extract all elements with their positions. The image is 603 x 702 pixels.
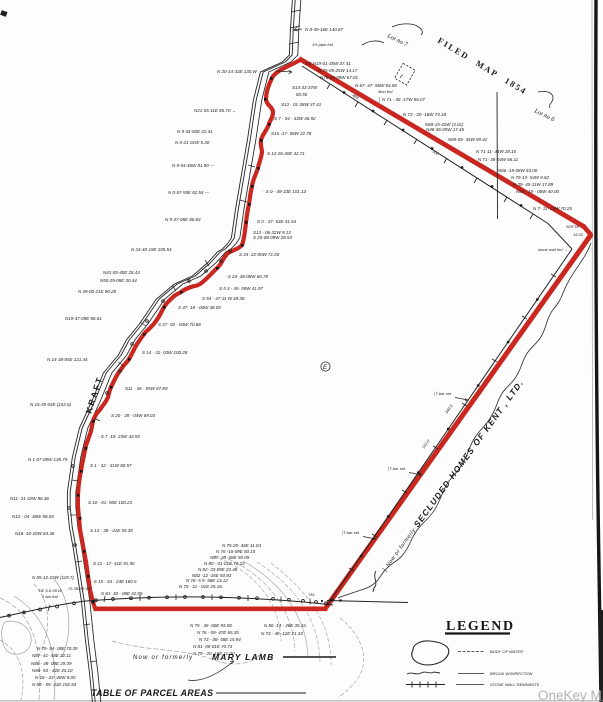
- svg-text:N 39- 45-11W 17.89: N 39- 45-11W 17.89: [513, 182, 554, 187]
- svg-text:N 76- 5 5- 58E 13.12: N 76- 5 5- 58E 13.12: [186, 578, 228, 583]
- svg-text:16.32: 16.32: [573, 232, 584, 237]
- svg-text:N41-05-40E 28.43: N41-05-40E 28.43: [103, 270, 140, 275]
- svg-text:Mon fnd: Mon fnd: [378, 89, 393, 94]
- svg-text:BODY OF WATER: BODY OF WATER: [490, 649, 523, 654]
- svg-text:76 3B-09 WP: 76 3B-09 WP: [68, 586, 92, 591]
- svg-text:N 75-05-25W 14.17: N 75-05-25W 14.17: [318, 68, 358, 73]
- svg-text:S 25-08-09W 28.53: S 25-08-09W 28.53: [253, 235, 293, 240]
- svg-text:- S 24- 38-08W 60.78: - S 24- 38-08W 60.78: [225, 274, 269, 279]
- svg-text:TIE 5-8-09 W: TIE 5-8-09 W: [38, 588, 63, 593]
- svg-text:LEGEND: LEGEND: [446, 619, 515, 634]
- svg-text:80.55: 80.55: [296, 92, 308, 97]
- svg-text:N 67- 47- 56W 64.58: N 67- 47- 56W 64.58: [355, 83, 397, 88]
- svg-text:N 05-12-23W (119.7): N 05-12-23W (119.7): [32, 575, 74, 580]
- svg-text:N66 -19-08W 43.00: N66 -19-08W 43.00: [498, 168, 538, 173]
- svg-text:N 9-34-50E 22.41: N 9-34-50E 22.41: [177, 129, 213, 134]
- svg-text:N 75-13- 54W 9.62: N 75-13- 54W 9.62: [511, 175, 550, 180]
- svg-text:1½ pipe fnd: 1½ pipe fnd: [312, 42, 334, 47]
- svg-text:S 0 - 37- 53E 41.54: S 0 - 37- 53E 41.54: [257, 219, 297, 224]
- svg-text:N 88 - 55- 41E 192.84: N 88 - 55- 41E 192.84: [32, 682, 77, 687]
- svg-text:N87- 41- 48E 22.11: N87- 41- 48E 22.11: [32, 653, 71, 658]
- svg-text:N 81- 00-01E 70.73: N 81- 00-01E 70.73: [193, 644, 233, 649]
- svg-text:TABLE OF PARCEL AREAS: TABLE OF PARCEL AREAS: [91, 688, 213, 698]
- svg-text:N 8-49-16E 140.87: N 8-49-16E 140.87: [305, 27, 344, 32]
- svg-text:N 14-38-05E 121.44: N 14-38-05E 121.44: [47, 357, 88, 362]
- svg-text:N48-36-05W 17.46: N48-36-05W 17.46: [426, 127, 465, 132]
- svg-text:N 15-35-04E (152.6): N 15-35-04E (152.6): [30, 402, 72, 407]
- svg-text:N86- 53 - 42E 43.10: N86- 53 - 42E 43.10: [32, 668, 73, 673]
- svg-text:N25°W: N25°W: [566, 224, 580, 229]
- svg-text:N 79 - 20 -18E 11.00: N 79 - 20 -18E 11.00: [193, 651, 235, 656]
- svg-text:N 24-40-19E 105.54: N 24-40-19E 105.54: [131, 247, 172, 252]
- svg-text:N 73 - 48 -12E 21.33: N 73 - 48 -12E 21.33: [261, 631, 303, 636]
- svg-text:N 76 -16-09E 50.15: N 76 -16-09E 50.15: [216, 549, 256, 554]
- svg-text:N76-23-09W 67.01: N76-23-09W 67.01: [320, 75, 359, 80]
- svg-text:S13 - 01-38W 37.41: S13 - 01-38W 37.41: [281, 102, 322, 107]
- svg-text:N 73 - 08- 58E 15.94: N 73 - 08- 58E 15.94: [199, 637, 241, 642]
- svg-text:N12 - 04- 36W 58.04: N12 - 04- 36W 58.04: [12, 514, 54, 519]
- svg-text:N 86 -14 - 46E 35.16: N 86 -14 - 46E 35.16: [264, 623, 306, 628]
- svg-text:N 20-14-33E 130.W: N 20-14-33E 130.W: [217, 69, 258, 74]
- svg-text:N 80 - 01-01E 72.23: N 80 - 01-01E 72.23: [204, 561, 245, 566]
- svg-text:N 75 - 11 - 01E 25.16,: N 75 - 11 - 01E 25.16,: [179, 584, 223, 589]
- svg-text:N50-29-08E 30.44: N50-29-08E 30.44: [100, 278, 137, 283]
- svg-text:N19-47-09E 86.61: N19-47-09E 86.61: [65, 316, 102, 321]
- svg-text:N 75-20- 46E 11.04: N 75-20- 46E 11.04: [222, 543, 261, 548]
- svg-text:N 7- 11- 24W 70.25: N 7- 11- 24W 70.25: [533, 206, 572, 211]
- svg-text:S 81- 40 - 08E 42.06: S 81- 40 - 08E 42.06: [101, 591, 143, 596]
- svg-text:N 0-57-59E 82.54 —: N 0-57-59E 82.54 —: [168, 190, 210, 195]
- svg-text:N 76 - 59- 47E 65.35: N 76 - 59- 47E 65.35: [197, 630, 239, 635]
- svg-text:N 1-07-08W 135.79: N 1-07-08W 135.79: [28, 457, 68, 462]
- svg-text:N21-55-11E 85.70 →: N21-55-11E 85.70 →: [194, 108, 236, 113]
- svg-text:S 5 3 - 45- 59W 41.97: S 5 3 - 45- 59W 41.97: [219, 286, 264, 291]
- svg-text:S 24- 22-00W 71.00: S 24- 22-00W 71.00: [239, 252, 280, 257]
- svg-text:BROOK W/DIRECTION: BROOK W/DIRECTION: [490, 671, 533, 676]
- svg-text:STONE WALL REMNANTS: STONE WALL REMNANTS: [490, 682, 539, 687]
- svg-text:S 54 - 47-11 W 49.38: S 54 - 47-11 W 49.38: [202, 296, 245, 301]
- svg-text:S16 -17- 58W 22.78: S16 -17- 58W 22.78: [271, 131, 312, 136]
- svg-text:N 75 - 36 -00E 93.08: N 75 - 36 -00E 93.08: [190, 623, 232, 628]
- svg-text:S 13 - 38 - 41E 55.35: S 13 - 38 - 41E 55.35: [90, 528, 133, 533]
- svg-text:Now or formerly: Now or formerly: [133, 655, 193, 661]
- svg-text:S 47- 18 - 00W 48.05: S 47- 18 - 00W 48.05: [178, 305, 221, 310]
- svg-text:N87- 38 -08E 50.09: N87- 38 -08E 50.09: [210, 555, 250, 560]
- svg-text:N11- 31-32W 96.36: N11- 31-32W 96.36: [10, 496, 49, 501]
- svg-text:S14-33-37W: S14-33-37W: [292, 85, 318, 90]
- svg-text:S 12-26-30E 42.71: S 12-26-30E 42.71: [267, 151, 305, 156]
- svg-text:OneKey MLS: OneKey MLS: [538, 688, 603, 702]
- svg-text:-TIE N19-01-35W 37.41: -TIE N19-01-35W 37.41: [303, 61, 351, 66]
- svg-text:N 75- 94- 08E 70.39: N 75- 94- 08E 70.39: [37, 646, 78, 651]
- svg-text:N66 - 19 - 08W 40.00: N66 - 19 - 08W 40.00: [516, 189, 560, 194]
- svg-text:1 bar fnd: 1 bar fnd: [42, 594, 59, 599]
- svg-text:N 71- 36-04W 66.11: N 71- 36-04W 66.11: [478, 157, 519, 162]
- svg-text:S 21 - 17- 41E 91.90: S 21 - 17- 41E 91.90: [93, 561, 135, 566]
- svg-text:N69-05- 45W 99.42: N69-05- 45W 99.42: [448, 137, 488, 142]
- svg-text:N 49-00-21E 90.28: N 49-00-21E 90.28: [78, 289, 117, 294]
- svg-text:- S 7 -10- 23W 43.59: - S 7 -10- 23W 43.59: [98, 434, 140, 439]
- svg-text:N 82- 33-09E 23.48: N 82- 33-09E 23.48: [198, 567, 238, 572]
- svg-text:TEL: TEL: [308, 592, 315, 597]
- svg-text:N88 - 48- 08E 29.39: N88 - 48- 08E 29.39: [31, 661, 72, 666]
- svg-text:- S 15 - 34 - 24E 160.5: - S 15 - 34 - 24E 160.5: [91, 579, 137, 584]
- svg-text:- S 0 - 49-33E 101.13: - S 0 - 49-33E 101.13: [263, 189, 307, 194]
- svg-text:N 9-54-46W 81.90 —: N 9-54-46W 81.90 —: [172, 163, 215, 168]
- svg-text:N 9-37-08E 80.63: N 9-37-08E 80.63: [165, 217, 201, 222]
- svg-text:S 7 - 04 - 33W 46.92: S 7 - 04 - 33W 46.92: [274, 116, 316, 121]
- svg-text:N16 -10-20W 64.36: N16 -10-20W 64.36: [15, 531, 55, 536]
- svg-text:S 20 - 28 - 04W 69.03: S 20 - 28 - 04W 69.03: [111, 413, 156, 418]
- svg-text:N 16 - 33- 40W 9.00: N 16 - 33- 40W 9.00: [35, 675, 76, 680]
- svg-text:S11 - 36 - 05W 87.89: S11 - 36 - 05W 87.89: [125, 386, 168, 391]
- svg-text:S 14 - 31- 03W 100.28: S 14 - 31- 03W 100.28: [142, 350, 188, 355]
- svg-text:S 1 - 42 - 31W 80.57: S 1 - 42 - 31W 80.57: [90, 463, 132, 468]
- svg-text:stone wall fnd →: stone wall fnd →: [538, 247, 568, 252]
- svg-text:N 0-21-01W 5.30: N 0-21-01W 5.30: [175, 140, 210, 145]
- svg-text:N 71-11- 44W 28.15: N 71-11- 44W 28.15: [476, 149, 517, 154]
- svg-text:N 73 - 20 -16W 73.18: N 73 - 20 -16W 73.18: [403, 112, 447, 117]
- svg-text:S 27- 02 - 04W 70.68: S 27- 02 - 04W 70.68: [158, 322, 201, 327]
- svg-text:S 10 - 01- 50E 100.23: S 10 - 01- 50E 100.23: [88, 500, 133, 505]
